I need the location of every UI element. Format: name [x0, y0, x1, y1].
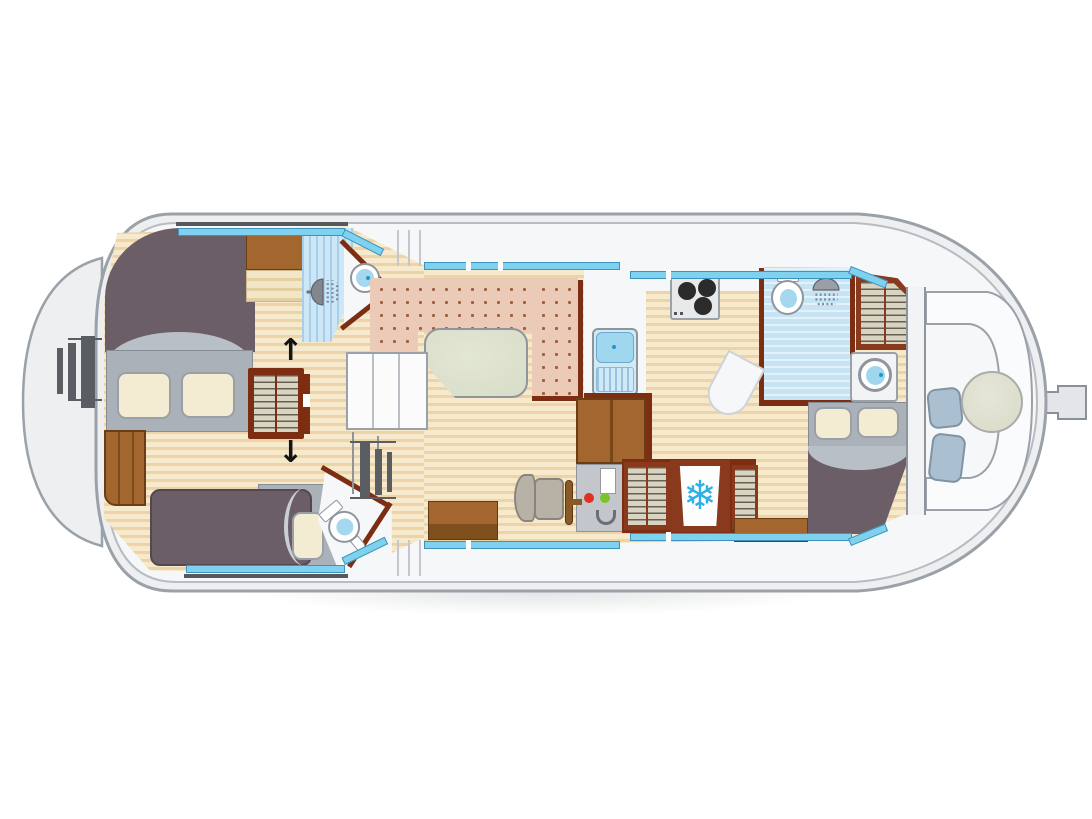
- nav-light-green: [600, 493, 610, 503]
- nav-light-red: [584, 493, 594, 503]
- helm-seat-back: [514, 474, 536, 522]
- bow-window-bottom: [186, 565, 345, 573]
- bow-ladder-step-1: [57, 348, 63, 394]
- wardrobe-aft-divider: [884, 282, 886, 344]
- bow-wall-top: [176, 222, 348, 226]
- aft-window-bottom-gap: [666, 532, 671, 542]
- dinette-trim-right: [578, 280, 583, 398]
- aft-toilet-water: [780, 289, 797, 308]
- bow-wardrobe-divider: [275, 375, 277, 432]
- bow-window-top: [178, 228, 345, 236]
- aft-berth-pillow-right: [857, 407, 899, 438]
- galley-wall-right: [646, 393, 652, 464]
- bow-ladder-step-3: [81, 336, 95, 408]
- boat-floor-plan: ↑ ↓: [0, 0, 1092, 819]
- bow-berth-pillow-right: [181, 372, 235, 418]
- bow-counter: [246, 234, 304, 270]
- bow-berth-pillow-left: [117, 372, 171, 419]
- saloon-window-bottom: [424, 541, 620, 549]
- heater-bar-2: [375, 449, 382, 495]
- aft-basin-drain: [879, 373, 883, 377]
- stern-cushion-upper: [926, 386, 964, 429]
- wardrobe-aftmid-interior: [735, 469, 755, 525]
- steering-column: [572, 499, 582, 505]
- bow-shower-head-icon: [305, 272, 341, 312]
- saloon-window-top-gap-2: [498, 261, 503, 271]
- bow-ladder-step-2: [68, 343, 76, 401]
- heater-bar-3: [387, 452, 392, 492]
- dinette-seat-right: [532, 278, 578, 398]
- galley-sink-drain: [612, 345, 616, 349]
- stove-burner-3: [694, 297, 712, 315]
- heater-cap-bottom: [350, 497, 396, 499]
- aft-bathroom-wall-right: [850, 268, 855, 360]
- wardrobe-mid-divider: [646, 467, 648, 525]
- galley-cabinet: [576, 398, 646, 464]
- saloon-window-top-gap-1: [466, 261, 471, 271]
- bow-wardrobe-door-gap: [303, 394, 310, 407]
- companionway-stairs: [346, 352, 428, 430]
- bow-wall-bottom: [184, 574, 348, 578]
- fridge-snowflake-icon: ❄: [678, 470, 722, 522]
- side-deck-steps-top: [388, 230, 428, 266]
- galley-window-top: [630, 271, 852, 279]
- desk: [428, 501, 498, 540]
- aft-cabin-bulkhead: [906, 287, 926, 515]
- stove-burner-2: [698, 279, 716, 297]
- saloon-window-bottom-gap: [466, 540, 471, 550]
- stern-table: [961, 371, 1023, 433]
- helm-instrument: [600, 468, 616, 494]
- heater-cap-top: [350, 441, 396, 443]
- galley-drainer: [596, 367, 634, 392]
- stove-burner-1: [678, 282, 696, 300]
- aft-window-bottom: [630, 533, 852, 541]
- bow-dresser: [104, 430, 146, 506]
- galley-window-top-gap: [666, 270, 671, 280]
- saloon-window-top: [424, 262, 620, 270]
- bow-counter-shelves: [246, 270, 304, 302]
- slide-arrow-down-icon: ↓: [278, 438, 303, 468]
- stair-tread-line-2: [398, 354, 400, 428]
- helm-seat: [534, 478, 564, 520]
- stern-cushion-lower: [927, 432, 967, 484]
- slide-arrow-up-icon: ↑: [278, 336, 303, 366]
- aft-bathroom-wall-left: [759, 268, 764, 406]
- stove-knobs: [674, 312, 684, 315]
- aft-berth-pillow-left: [814, 407, 852, 440]
- stair-tread-line-1: [372, 354, 374, 428]
- heater-bar-1: [360, 443, 370, 499]
- side-deck-steps-bottom: [388, 540, 428, 576]
